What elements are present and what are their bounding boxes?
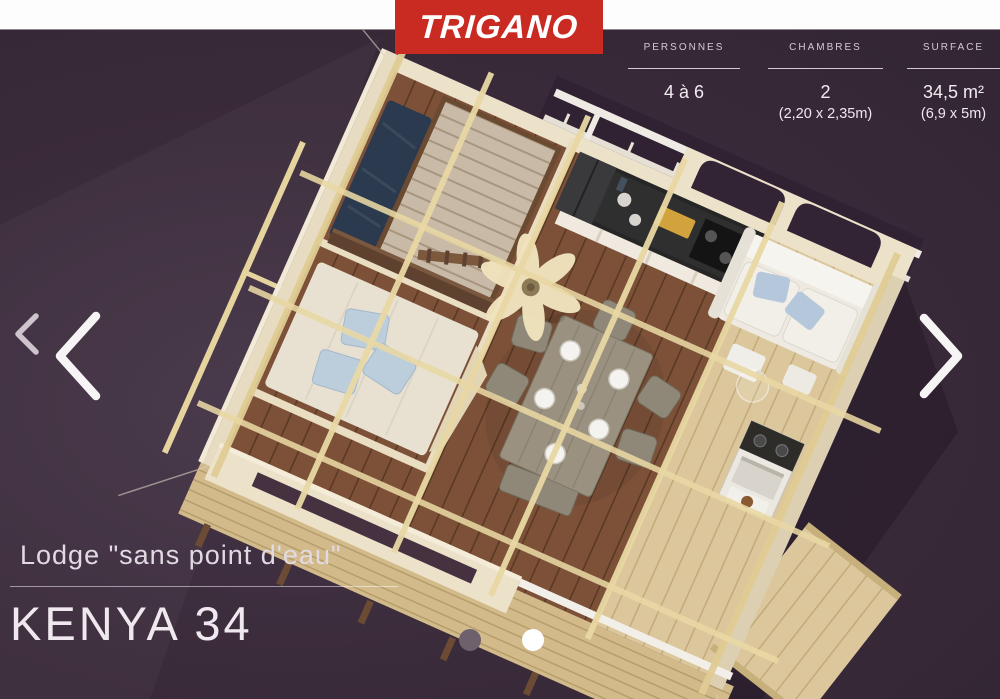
product-subtitle: Lodge "sans point d'eau" <box>20 540 342 571</box>
carousel-dot[interactable] <box>522 629 544 651</box>
chevron-left-small-icon <box>18 316 36 352</box>
spec-chambres: CHAMBRES 2 (2,20 x 2,35m) <box>768 42 883 122</box>
carousel-dot[interactable] <box>459 629 481 651</box>
spec-label: SURFACE <box>907 42 1000 53</box>
spec-personnes: PERSONNES 4 à 6 <box>628 42 740 106</box>
carousel-next-button[interactable] <box>914 310 970 402</box>
spec-divider <box>628 68 740 69</box>
spec-subvalue: (2,20 x 2,35m) <box>768 106 883 122</box>
spec-subvalue: (6,9 x 5m) <box>907 106 1000 122</box>
product-title: KENYA 34 <box>10 596 253 651</box>
spec-value: 2 <box>768 82 883 103</box>
spec-label: CHAMBRES <box>768 42 883 53</box>
spec-label: PERSONNES <box>628 42 740 53</box>
chevron-left-icon <box>60 316 96 396</box>
spec-value: 34,5 m² <box>907 82 1000 103</box>
trigano-logo: TRIGANO <box>395 0 603 54</box>
spec-divider <box>907 68 1000 69</box>
caption-divider <box>10 586 398 587</box>
spec-surface: SURFACE 34,5 m² (6,9 x 5m) <box>907 42 1000 122</box>
carousel-prev-button[interactable] <box>8 308 108 404</box>
logo-text: TRIGANO <box>418 8 580 46</box>
spec-divider <box>768 68 883 69</box>
chevron-right-icon <box>924 318 958 394</box>
spec-value: 4 à 6 <box>628 82 740 103</box>
